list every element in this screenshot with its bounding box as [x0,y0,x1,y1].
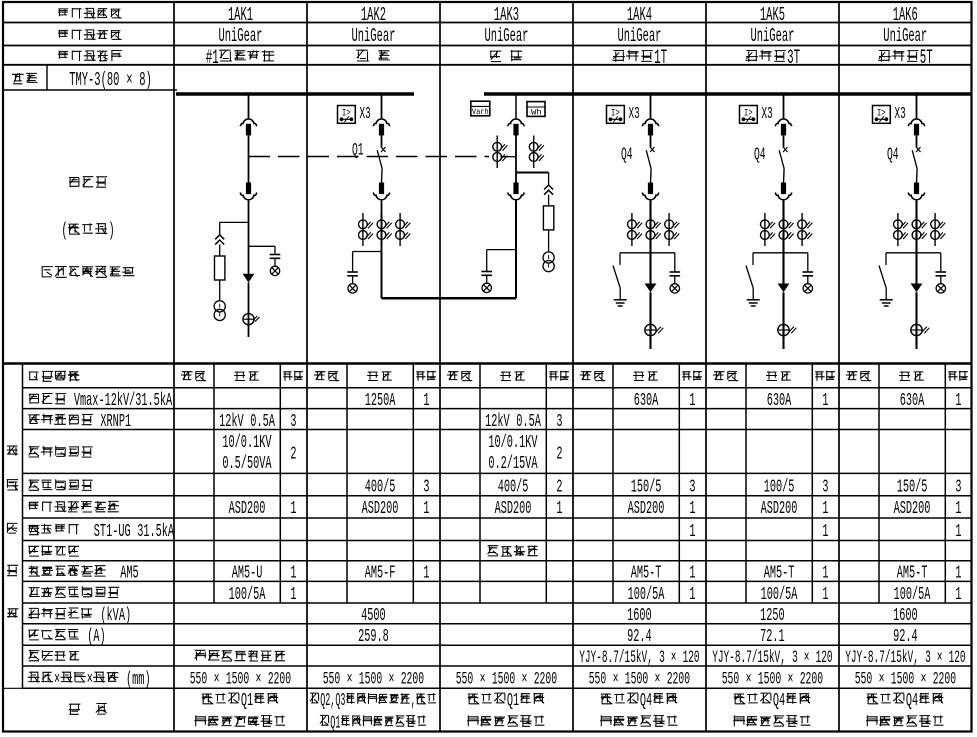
svg-text:550: 550 [722,670,740,690]
svg-text:×: × [214,670,220,690]
svg-text:100/5: 100/5 [764,476,795,498]
svg-text:120: 120 [949,649,966,668]
svg-text:X3: X3 [762,105,773,124]
svg-text:3T: 3T [787,46,800,69]
svg-text:Q4: Q4 [621,145,633,165]
svg-text:1: 1 [955,562,961,584]
svg-text:3: 3 [290,410,296,432]
svg-text:Q1: Q1 [507,689,519,711]
svg-text:0.5A: 0.5A [250,410,275,432]
svg-text:AM5-U: AM5-U [232,562,263,584]
svg-text:100/5A: 100/5A [761,583,798,605]
svg-text:2: 2 [556,442,562,464]
svg-text:1AK1: 1AK1 [228,4,253,26]
svg-text:150/5: 150/5 [631,476,662,498]
svg-text:×: × [671,649,677,668]
svg-text:100/5A: 100/5A [894,583,931,605]
svg-text:AM5-F: AM5-F [365,562,396,584]
svg-text:630A: 630A [900,389,925,411]
svg-text:10/0.1KV: 10/0.1KV [222,431,272,453]
svg-text:1: 1 [689,497,695,519]
svg-text:3: 3 [423,476,429,498]
svg-text:AM5-T: AM5-T [897,562,928,584]
svg-text:×: × [788,670,794,690]
svg-text:120: 120 [683,649,700,668]
svg-text:3: 3 [689,476,695,498]
svg-text:550: 550 [855,670,873,690]
svg-text:Q4: Q4 [906,689,918,711]
svg-text:400/5: 400/5 [498,476,529,498]
svg-text:2: 2 [290,442,296,464]
svg-text:1: 1 [423,562,429,584]
svg-text:4500: 4500 [361,604,386,626]
svg-text:1250: 1250 [760,604,785,626]
svg-text:1500: 1500 [492,670,515,690]
svg-text:72.1: 72.1 [760,625,785,647]
svg-text:1: 1 [822,583,828,605]
svg-text:X3: X3 [629,105,640,124]
svg-text:92.4: 92.4 [893,625,918,647]
svg-text:×: × [126,69,132,91]
svg-text:1AK6: 1AK6 [893,4,918,26]
svg-text:ST1-UG: ST1-UG [94,520,131,542]
svg-text:×: × [921,670,927,690]
svg-text:1: 1 [689,520,695,542]
svg-text:UniGear: UniGear [618,25,662,47]
svg-text:1600: 1600 [627,604,652,626]
svg-text:3: 3 [955,476,961,498]
svg-text:ASD200: ASD200 [495,497,532,519]
svg-text:550: 550 [190,670,208,690]
svg-text:3: 3 [925,649,931,668]
svg-text:×: × [879,670,885,690]
svg-text:I>: I> [611,109,620,120]
svg-text:259.8: 259.8 [358,625,389,647]
svg-text:1: 1 [290,583,296,605]
svg-text:Varh: Varh [472,107,489,117]
svg-text:3: 3 [556,410,562,432]
svg-text:I>: I> [877,109,886,120]
svg-text:Q1: Q1 [352,141,364,161]
svg-text:Vmax-12kV/31.5kA: Vmax-12kV/31.5kA [74,389,173,411]
svg-text:31.5kA: 31.5kA [137,520,174,542]
svg-text:1500: 1500 [359,670,382,690]
svg-text:AM5-T: AM5-T [631,562,662,584]
svg-text:550: 550 [323,670,341,690]
svg-text:,: , [411,689,416,711]
svg-text:YJY-8.7/15kV,: YJY-8.7/15kV, [845,649,919,668]
svg-text:XRNP1: XRNP1 [100,410,131,432]
svg-text:12kV: 12kV [485,410,510,432]
svg-text:1: 1 [955,497,961,519]
svg-text:0.5/50VA: 0.5/50VA [222,452,272,474]
svg-text:ASD200: ASD200 [628,497,665,519]
svg-text:ASD200: ASD200 [362,497,399,519]
svg-text:1500: 1500 [758,670,781,690]
svg-text:10/0.1KV: 10/0.1KV [488,431,538,453]
svg-text:Q4: Q4 [887,145,899,165]
svg-text:Q1: Q1 [241,689,253,711]
svg-text:×: × [480,670,486,690]
svg-text:Q4: Q4 [640,689,652,711]
svg-text:ASD200: ASD200 [761,497,798,519]
svg-text:2200: 2200 [534,670,557,690]
svg-text:I>: I> [744,109,753,120]
svg-text:#1: #1 [206,46,219,69]
svg-text:1AK4: 1AK4 [627,4,652,26]
svg-text:×: × [937,649,943,668]
svg-text:120: 120 [816,649,833,668]
svg-text:UniGear: UniGear [485,25,529,47]
svg-text:Q1: Q1 [330,712,340,734]
svg-text:1500: 1500 [891,670,914,690]
svg-text:(: ( [61,220,67,242]
svg-text:X3: X3 [360,105,371,124]
svg-text:UniGear: UniGear [219,25,263,47]
svg-text:1: 1 [423,497,429,519]
svg-text:×: × [746,670,752,690]
svg-text:(A): (A) [87,625,105,647]
svg-text:1600: 1600 [893,604,918,626]
svg-text:2: 2 [556,476,562,498]
svg-text:100/5A: 100/5A [229,583,266,605]
svg-text:UniGear: UniGear [883,25,927,47]
svg-text:1: 1 [689,389,695,411]
svg-text:1: 1 [822,520,828,542]
svg-text:Q2,Q3: Q2,Q3 [320,689,345,711]
svg-text:630A: 630A [634,389,659,411]
svg-text:AM5: AM5 [120,562,138,584]
svg-text:1: 1 [822,497,828,519]
svg-text:1: 1 [955,520,961,542]
svg-text:2200: 2200 [933,670,956,690]
svg-text:1: 1 [290,497,296,519]
svg-text:×: × [347,670,353,690]
svg-text:ASD200: ASD200 [229,497,266,519]
svg-text:100/5A: 100/5A [628,583,665,605]
svg-text:×: × [522,670,528,690]
svg-text:150/5: 150/5 [897,476,928,498]
svg-text:UniGear: UniGear [352,25,396,47]
svg-text:YJY-8.7/15kV,: YJY-8.7/15kV, [712,649,786,668]
svg-text:1: 1 [689,562,695,584]
svg-text:×: × [655,670,661,690]
svg-text:1500: 1500 [625,670,648,690]
svg-text:0.5A: 0.5A [516,410,541,432]
svg-text:1: 1 [556,497,562,519]
svg-text:630A: 630A [767,389,792,411]
svg-text:0.2/15VA: 0.2/15VA [488,452,538,474]
svg-text:400/5: 400/5 [365,476,396,498]
svg-text:×: × [613,670,619,690]
svg-text:I>: I> [342,109,351,120]
svg-text:ASD200: ASD200 [894,497,931,519]
svg-text:2200: 2200 [401,670,424,690]
svg-text:1AK5: 1AK5 [760,4,785,26]
svg-text:1AK3: 1AK3 [494,4,519,26]
svg-text:1T: 1T [654,46,667,69]
svg-text:UniGear: UniGear [751,25,795,47]
svg-text:8): 8) [139,69,152,91]
svg-text:×: × [389,670,395,690]
svg-text:1: 1 [822,562,828,584]
svg-text:AM5-T: AM5-T [764,562,795,584]
svg-text:3: 3 [792,649,798,668]
svg-text:X3: X3 [895,105,906,124]
svg-text:1500: 1500 [226,670,249,690]
svg-text:×: × [256,670,262,690]
svg-text:12kV: 12kV [219,410,244,432]
svg-text:1: 1 [290,562,296,584]
svg-text:1: 1 [822,389,828,411]
svg-text:2200: 2200 [667,670,690,690]
svg-text:×: × [54,668,60,690]
svg-text:1: 1 [689,583,695,605]
svg-text:Q4: Q4 [773,689,785,711]
svg-text:550: 550 [589,670,607,690]
svg-text:550: 550 [456,670,474,690]
svg-text:1: 1 [955,389,961,411]
svg-text:Q4: Q4 [754,145,766,165]
svg-text:1250A: 1250A [365,389,396,411]
svg-text:1: 1 [955,583,961,605]
svg-text:1AK2: 1AK2 [361,4,386,26]
svg-text:×: × [87,668,93,690]
svg-text:2200: 2200 [268,670,291,690]
svg-text:3: 3 [822,476,828,498]
svg-text:3: 3 [659,649,665,668]
svg-text:1: 1 [423,389,429,411]
svg-text:Wh: Wh [531,107,542,117]
svg-text:×: × [804,649,810,668]
svg-text:YJY-8.7/15kV,: YJY-8.7/15kV, [579,649,653,668]
svg-text:): ) [108,220,114,242]
svg-text:(mm): (mm) [126,668,151,690]
svg-text:5T: 5T [920,46,933,69]
svg-text:(kVA): (kVA) [100,604,131,626]
svg-text:2200: 2200 [800,670,823,690]
svg-text:92.4: 92.4 [627,625,652,647]
svg-text:TMY-3(80: TMY-3(80 [69,69,119,91]
